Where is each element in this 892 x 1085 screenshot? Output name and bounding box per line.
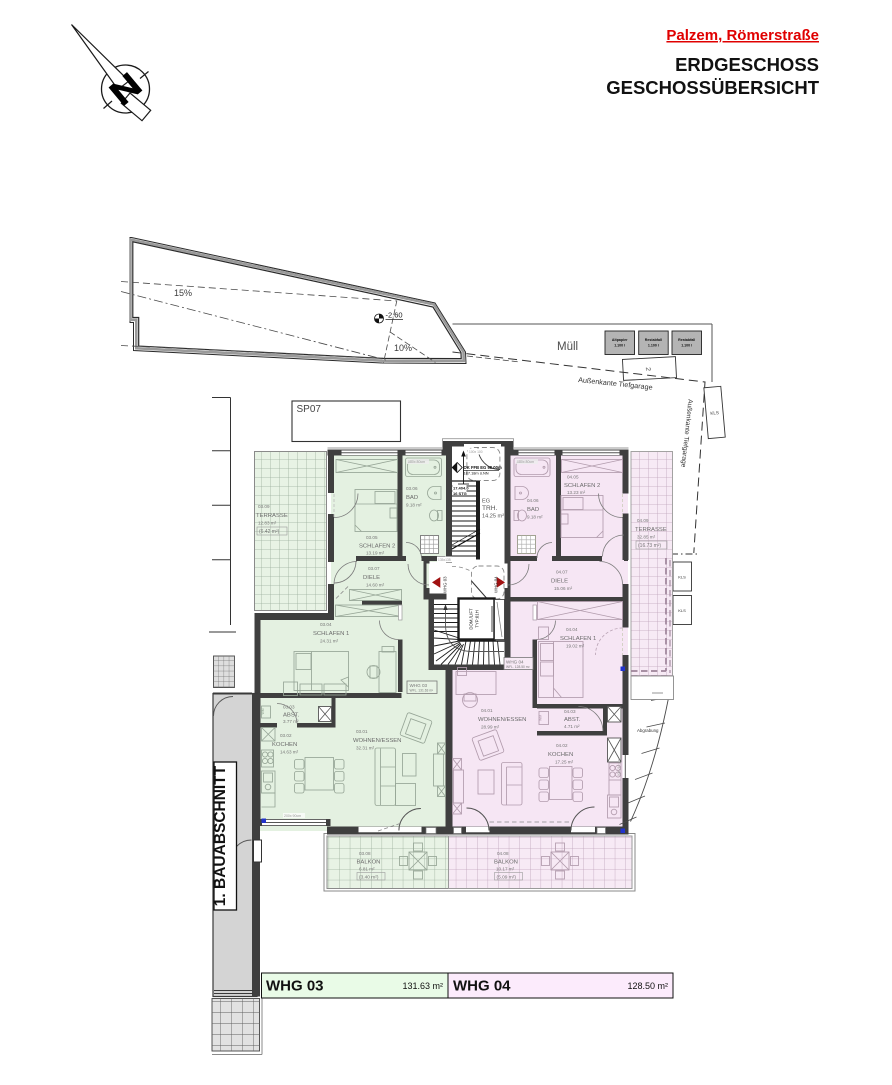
svg-text:03.02: 03.02	[280, 733, 292, 738]
svg-text:BALKON: BALKON	[357, 860, 381, 866]
svg-text:OK FFB EG 98.00m: OK FFB EG 98.00m	[464, 465, 502, 470]
svg-text:04.07: 04.07	[556, 570, 568, 575]
svg-text:1.100 l: 1.100 l	[614, 344, 625, 348]
svg-text:WM: WM	[261, 708, 265, 714]
svg-text:WOHNEN/ESSEN: WOHNEN/ESSEN	[353, 738, 401, 744]
svg-text:32.31 m²: 32.31 m²	[356, 746, 375, 751]
svg-text:KLS: KLS	[710, 410, 719, 416]
svg-text:Müll: Müll	[557, 341, 578, 353]
svg-text:03.01: 03.01	[356, 729, 368, 734]
svg-text:WHG 03: WHG 03	[443, 576, 448, 593]
svg-text:04.08: 04.08	[497, 851, 509, 856]
svg-text:128.50 m²: 128.50 m²	[627, 981, 668, 991]
svg-text:BALKON: BALKON	[494, 860, 518, 866]
svg-text:16 STG: 16 STG	[453, 491, 467, 496]
svg-text:ERDGESCHOSS: ERDGESCHOSS	[675, 54, 819, 75]
svg-text:TRH.: TRH.	[482, 505, 498, 512]
svg-text:Altpapier: Altpapier	[612, 338, 628, 342]
svg-text:TERRASSE: TERRASSE	[256, 513, 288, 519]
svg-text:BAD: BAD	[527, 507, 539, 513]
svg-text:(16.73 m²): (16.73 m²)	[638, 543, 661, 549]
svg-text:03.05: 03.05	[366, 535, 378, 540]
svg-text:04.02: 04.02	[556, 743, 568, 748]
svg-text:04.04: 04.04	[566, 627, 578, 632]
svg-text:TYP:01H: TYP:01H	[475, 610, 480, 627]
svg-text:15%: 15%	[174, 288, 192, 298]
svg-text:SP07: SP07	[297, 404, 322, 415]
svg-text:24.31 m²: 24.31 m²	[320, 639, 339, 644]
svg-text:(6.42 m²): (6.42 m²)	[259, 529, 280, 535]
svg-text:200x 90cm: 200x 90cm	[284, 814, 301, 818]
svg-text:14.25 m²: 14.25 m²	[482, 514, 504, 520]
svg-text:TERRASSE: TERRASSE	[635, 527, 667, 533]
svg-text:03.03: 03.03	[283, 705, 295, 710]
svg-text:KLS: KLS	[678, 608, 686, 613]
svg-text:KOCHEN: KOCHEN	[548, 752, 573, 758]
svg-text:100x 100: 100x 100	[469, 450, 483, 454]
svg-text:BAD: BAD	[406, 495, 418, 501]
svg-text:4.71 m²: 4.71 m²	[564, 724, 580, 729]
svg-text:WHG 04: WHG 04	[506, 660, 524, 665]
svg-text:17.25 m²: 17.25 m²	[555, 760, 574, 765]
svg-text:WHG 04: WHG 04	[453, 978, 511, 995]
svg-text:SCHLAFEN 1: SCHLAFEN 1	[560, 636, 596, 642]
svg-text:04.09: 04.09	[637, 518, 649, 523]
svg-text:WHG 03: WHG 03	[410, 683, 428, 688]
svg-text:EG: EG	[482, 499, 490, 505]
svg-text:2: 2	[644, 367, 651, 371]
svg-text:9.18 m²: 9.18 m²	[527, 515, 543, 520]
svg-text:13.23 m²: 13.23 m²	[567, 490, 586, 495]
svg-text:15.06 m²: 15.06 m²	[554, 586, 573, 591]
svg-text:1.100 l: 1.100 l	[681, 344, 692, 348]
svg-text:WHG 04: WHG 04	[494, 576, 499, 593]
svg-text:03.07: 03.07	[368, 566, 380, 571]
svg-text:WFL. 131.63 m²: WFL. 131.63 m²	[410, 689, 435, 693]
svg-text:Abgrabung: Abgrabung	[637, 728, 659, 733]
svg-text:187.18m ü.NN: 187.18m ü.NN	[464, 471, 489, 476]
svg-text:03.06: 03.06	[406, 486, 418, 491]
svg-text:ABST.: ABST.	[564, 717, 581, 723]
svg-text:10%: 10%	[394, 343, 412, 353]
svg-text:Restabfall: Restabfall	[645, 338, 662, 342]
svg-text:ABST.: ABST.	[283, 713, 300, 719]
svg-text:14.60 m²: 14.60 m²	[366, 583, 385, 588]
svg-text:1.100 l: 1.100 l	[648, 344, 659, 348]
svg-text:6.81 m²: 6.81 m²	[359, 867, 375, 872]
svg-text:135x135: 135x135	[438, 558, 451, 562]
svg-text:04.05: 04.05	[567, 475, 579, 480]
svg-text:GESCHOSSÜBERSICHT: GESCHOSSÜBERSICHT	[606, 77, 819, 98]
svg-text:28.99 m²: 28.99 m²	[481, 725, 500, 730]
svg-text:180x 80cm: 180x 80cm	[517, 460, 534, 464]
svg-text:WHG 03: WHG 03	[266, 978, 324, 995]
svg-text:Palzem, Römerstraße: Palzem, Römerstraße	[666, 27, 819, 44]
svg-text:SCHLAFEN 2: SCHLAFEN 2	[564, 483, 600, 489]
svg-text:SCHLAFEN 2: SCHLAFEN 2	[359, 544, 395, 550]
svg-text:03.09: 03.09	[258, 504, 270, 509]
svg-text:14.63 m²: 14.63 m²	[280, 750, 299, 755]
svg-text:WM: WM	[539, 715, 543, 721]
svg-text:KOCHEN: KOCHEN	[272, 742, 297, 748]
svg-text:Außenkante Tiefgarage: Außenkante Tiefgarage	[679, 399, 693, 468]
svg-text:13.19 m²: 13.19 m²	[366, 551, 385, 556]
svg-text:(3.40 m²): (3.40 m²)	[359, 875, 379, 881]
svg-text:WFL. 128.50 m²: WFL. 128.50 m²	[506, 665, 531, 669]
svg-text:03.08: 03.08	[359, 851, 371, 856]
svg-text:12.83 m²: 12.83 m²	[258, 521, 277, 526]
svg-text:1. BAUABSCHNITT: 1. BAUABSCHNITT	[212, 765, 229, 906]
svg-text:-2.60: -2.60	[386, 311, 403, 320]
svg-text:03.04: 03.04	[320, 622, 332, 627]
svg-text:DIELE: DIELE	[363, 575, 380, 581]
svg-text:04.01: 04.01	[481, 708, 493, 713]
svg-text:17.404.0: 17.404.0	[453, 486, 469, 491]
svg-text:DOM./LIFT: DOM./LIFT	[469, 608, 474, 630]
svg-text:Restabfall: Restabfall	[678, 338, 695, 342]
svg-text:9.18 m²: 9.18 m²	[406, 503, 422, 508]
svg-text:WOHNEN/ESSEN: WOHNEN/ESSEN	[478, 717, 526, 723]
svg-text:04.06: 04.06	[527, 498, 539, 503]
svg-text:10.17 m²: 10.17 m²	[496, 867, 515, 872]
svg-text:32.85 m²: 32.85 m²	[637, 535, 656, 540]
svg-text:19.02 m²: 19.02 m²	[566, 644, 585, 649]
svg-text:04.03: 04.03	[564, 709, 576, 714]
svg-text:KLS: KLS	[678, 575, 686, 580]
svg-text:DIELE: DIELE	[551, 579, 568, 585]
svg-text:180x 80cm: 180x 80cm	[408, 460, 425, 464]
svg-text:131.63 m²: 131.63 m²	[402, 981, 443, 991]
svg-text:90x 210 cm: 90x 210 cm	[617, 759, 621, 776]
svg-text:SCHLAFEN 1: SCHLAFEN 1	[313, 631, 349, 637]
svg-text:(5.09 m²): (5.09 m²)	[497, 875, 517, 881]
svg-text:3.77 m²: 3.77 m²	[283, 719, 299, 724]
